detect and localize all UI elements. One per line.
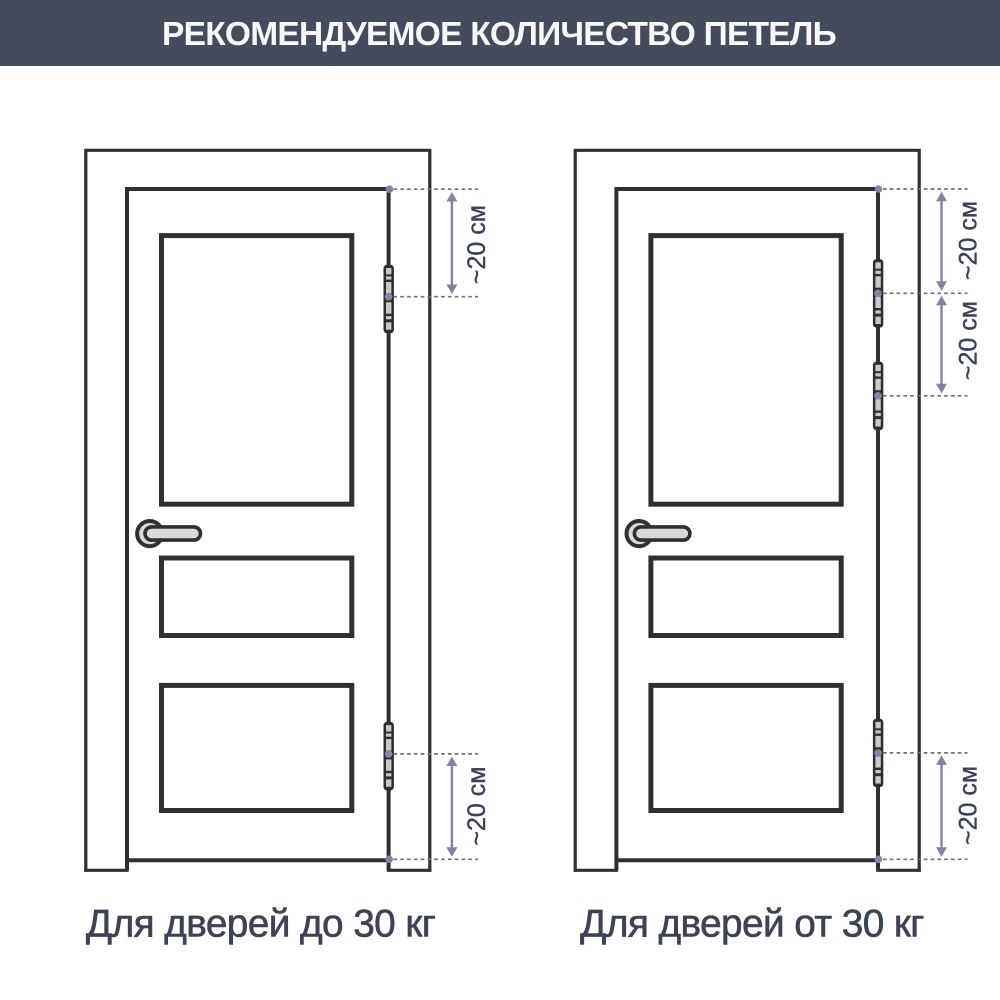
svg-text:~20 см: ~20 см bbox=[463, 767, 491, 846]
svg-text:~20 см: ~20 см bbox=[954, 201, 982, 280]
svg-text:~20 см: ~20 см bbox=[463, 205, 491, 284]
svg-text:РЕКОМЕНДУЕМОЕ КОЛИЧЕСТВО ПЕТЕЛ: РЕКОМЕНДУЕМОЕ КОЛИЧЕСТВО ПЕТЕЛЬ bbox=[162, 16, 836, 53]
svg-text:Для дверей от 30 кг: Для дверей от 30 кг bbox=[580, 903, 924, 946]
svg-text:~20 см: ~20 см bbox=[954, 766, 982, 845]
svg-text:Для дверей до 30 кг: Для дверей до 30 кг bbox=[86, 903, 436, 946]
svg-text:~20 см: ~20 см bbox=[954, 301, 982, 380]
